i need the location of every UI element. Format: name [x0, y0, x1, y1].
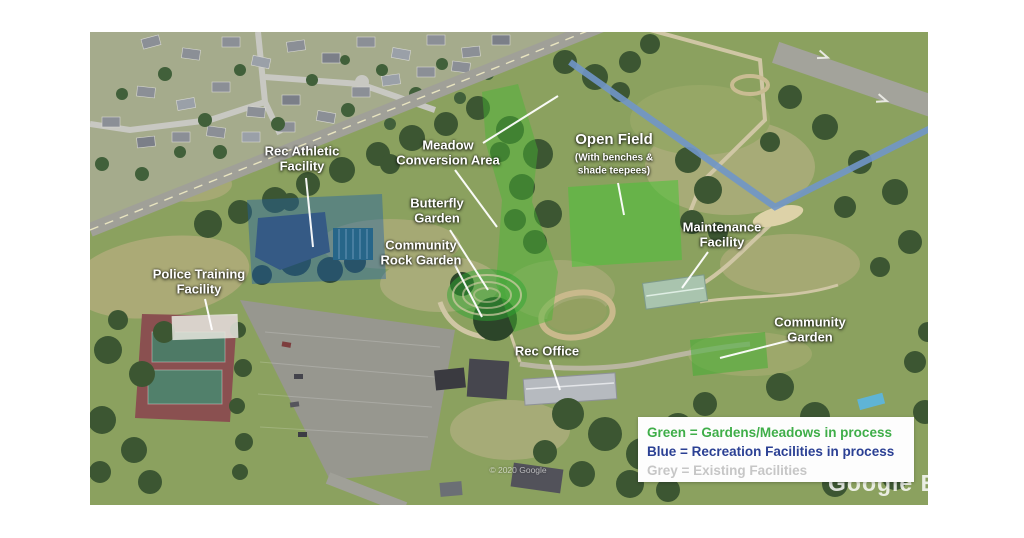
- slide: Rec Athletic Facility Meadow Conversion …: [0, 0, 1024, 538]
- google-attribution: © 2020 Google: [458, 465, 578, 475]
- label-open-field: Open Field: [575, 131, 653, 149]
- label-maintenance-facility: Maintenance Facility: [683, 220, 762, 251]
- police-training-overlay: [172, 314, 239, 340]
- legend-item-blue: Blue = Recreation Facilities in process: [647, 442, 914, 461]
- rec-athletic-facility: [247, 194, 386, 284]
- aerial-photo: Rec Athletic Facility Meadow Conversion …: [90, 32, 928, 505]
- label-police-training-facility: Police Training Facility: [153, 267, 245, 298]
- label-open-field-sub: (With benches & shade teepees): [575, 153, 653, 178]
- label-rec-office: Rec Office: [515, 343, 579, 358]
- label-community-rock-garden: Community Rock Garden: [381, 238, 462, 269]
- legend-item-grey: Grey = Existing Facilities: [647, 461, 914, 480]
- rec-athletic-overlay: [247, 194, 386, 284]
- label-rec-athletic-facility: Rec Athletic Facility: [265, 144, 340, 175]
- rock-garden-overlay: [447, 269, 527, 321]
- open-field-overlay: [568, 180, 682, 267]
- label-community-garden: Community Garden: [751, 315, 869, 346]
- legend-item-green: Green = Gardens/Meadows in process: [647, 423, 914, 442]
- label-meadow-conversion-area: Meadow Conversion Area: [396, 138, 500, 169]
- legend: Green = Gardens/Meadows in process Blue …: [638, 417, 914, 482]
- label-butterfly-garden: Butterfly Garden: [410, 196, 463, 227]
